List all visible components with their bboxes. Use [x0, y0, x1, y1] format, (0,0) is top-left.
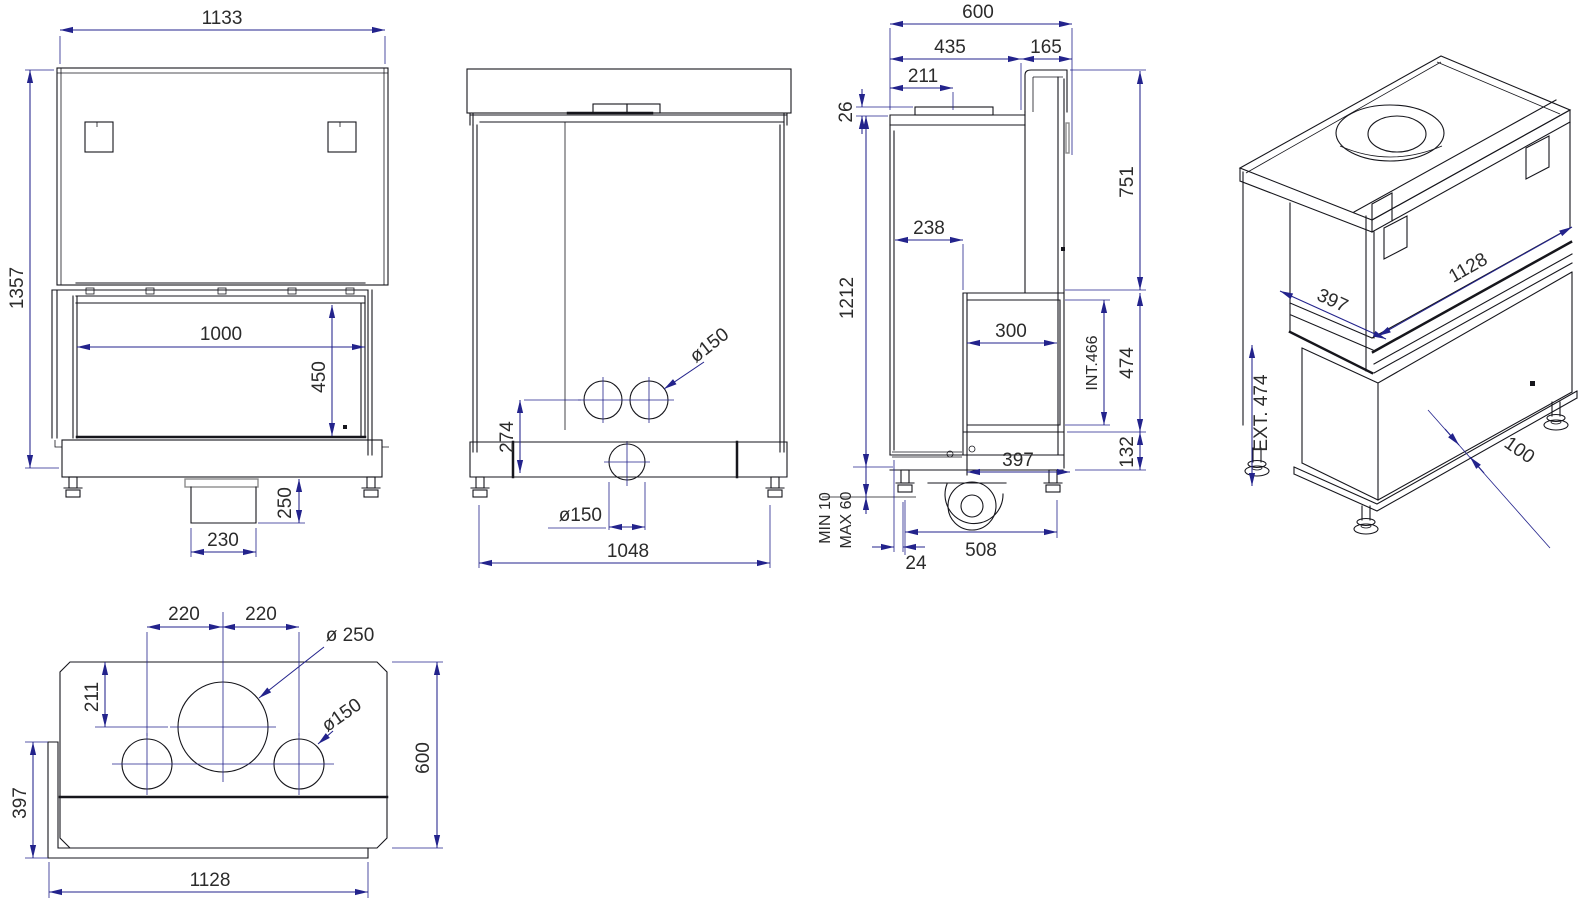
- dim-top-glass-side-depth: 397: [10, 787, 31, 819]
- dim-side-glass-inner-height: INT.466: [1084, 335, 1101, 390]
- top-view: 220 220 ø 250 ø150 211 397 600 1128: [10, 604, 443, 898]
- drawing-svg: 1133 1357 1000 450 250 230: [0, 0, 1579, 900]
- dim-rear-upper-duct: ø150: [686, 324, 733, 367]
- side-front-column: [1025, 77, 1064, 468]
- dim-side-front-depth: 435: [934, 37, 966, 58]
- dim-side-foot-spacing: 508: [965, 540, 997, 561]
- front-vent-left: [85, 122, 113, 152]
- side-back-edge: [890, 125, 894, 455]
- dim-side-foot-max: MAX 60: [838, 491, 855, 548]
- dim-side-glass-width: 300: [995, 321, 1027, 342]
- front-left-foot: [64, 477, 82, 497]
- technical-drawing-sheet: 1133 1357 1000 450 250 230: [0, 0, 1579, 900]
- rear-left-foot: [471, 477, 489, 497]
- front-pedestal-duct: [191, 487, 256, 523]
- dim-side-collar-height: 26: [836, 101, 857, 122]
- iso-vent-left: [1384, 216, 1407, 259]
- dim-front-pedestal-width: 230: [207, 530, 239, 551]
- dim-side-recess-depth: 238: [913, 218, 945, 239]
- dim-top-flue-right-offset: 220: [245, 604, 277, 625]
- dim-side-foot-min: MIN 10: [817, 492, 834, 544]
- top-body-outline: [60, 662, 387, 848]
- dim-top-flue-diameter: ø 250: [326, 625, 375, 646]
- rear-right-foot: [766, 477, 784, 497]
- dim-side-flue-offset: 211: [908, 66, 938, 87]
- dim-side-foot-offset: 24: [905, 553, 927, 574]
- side-flue-collar: [915, 107, 993, 115]
- front-base-opening: [185, 479, 258, 487]
- dim-front-overall-width: 1133: [202, 8, 243, 29]
- isometric-view: 1128 397 EXT. 474 100: [1240, 56, 1577, 548]
- dim-side-base-height: 132: [1117, 436, 1138, 468]
- dim-front-overall-height: 1357: [7, 267, 28, 309]
- dim-front-glass-height: 450: [309, 361, 330, 393]
- front-view: 1133 1357 1000 450 250 230: [7, 8, 389, 557]
- front-base: [62, 440, 382, 477]
- dim-side-upper-height: 751: [1117, 166, 1138, 198]
- front-right-foot: [362, 477, 380, 497]
- front-right-edge: [361, 290, 372, 455]
- dim-iso-glass-outer-height: EXT. 474: [1251, 374, 1272, 452]
- front-upper-panel: [57, 68, 388, 285]
- front-left-door-edge: [52, 290, 77, 438]
- dim-side-glass-depth: 397: [1002, 450, 1034, 471]
- dim-side-total-depth: 600: [962, 2, 994, 23]
- side-left-foot: [896, 470, 914, 492]
- dim-rear-base-width: 1048: [607, 541, 649, 562]
- side-front-cap: [1025, 70, 1067, 112]
- side-fan: [928, 482, 1006, 530]
- iso-vent-right: [1526, 136, 1549, 179]
- dim-top-glass-front-width: 1128: [190, 870, 231, 891]
- dim-side-glass-outer-height: 474: [1117, 347, 1138, 379]
- dim-rear-lower-duct: ø150: [559, 505, 602, 526]
- side-worktop: [890, 115, 1025, 125]
- dim-iso-glass-front-width: 1128: [1445, 249, 1491, 287]
- rear-view: 274 ø150 ø150 1048: [467, 69, 791, 568]
- dim-top-duct-diameter: ø150: [318, 694, 366, 736]
- dim-side-total-height: 1212: [837, 277, 858, 319]
- front-vent-right: [328, 122, 356, 152]
- front-frame-band: [52, 283, 368, 303]
- top-glass-frame-band: [48, 742, 368, 858]
- rear-top-cap: [467, 69, 791, 113]
- iso-glass-band: [1243, 172, 1572, 425]
- side-right-foot: [1044, 470, 1062, 492]
- dim-rear-connector-height: 274: [497, 421, 518, 453]
- dim-front-glass-width: 1000: [200, 324, 242, 345]
- side-view: 600 435 165 211 26 751 1212 MIN 10 MAX 6…: [817, 2, 1146, 574]
- dim-top-flue-back-offset: 211: [82, 682, 103, 712]
- dim-top-flue-left-offset: 220: [168, 604, 200, 625]
- dim-top-total-depth: 600: [413, 742, 434, 774]
- dim-side-back-depth: 165: [1030, 37, 1062, 58]
- dim-iso-glass-side-depth: 397: [1314, 285, 1352, 317]
- dim-front-pedestal-height: 250: [275, 487, 296, 519]
